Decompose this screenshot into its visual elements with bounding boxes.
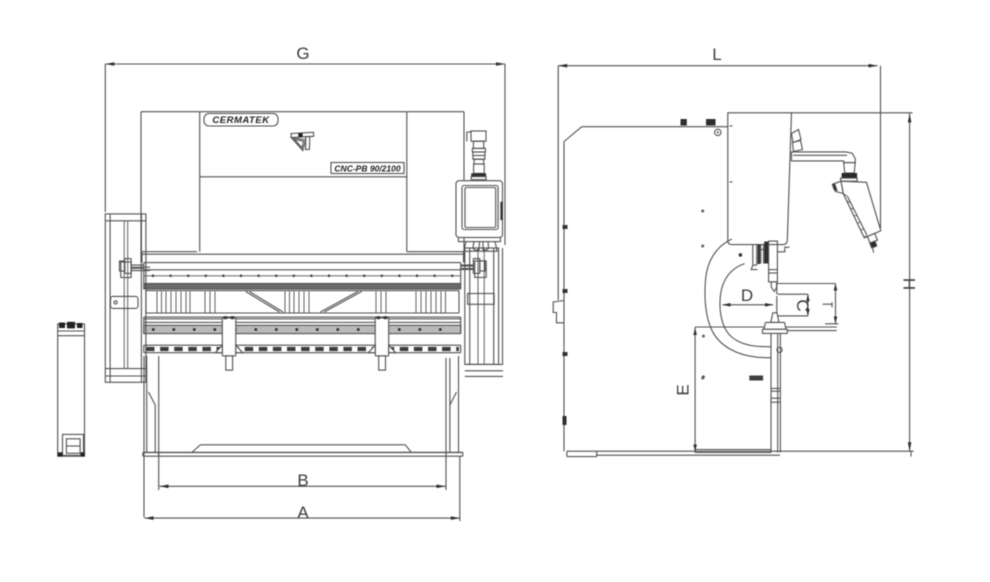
svg-text:C: C (793, 299, 812, 311)
svg-text:L: L (712, 45, 721, 64)
svg-text:B: B (297, 471, 308, 490)
svg-text:D: D (741, 286, 753, 305)
svg-text:CNC-PB 90/2100: CNC-PB 90/2100 (334, 164, 400, 174)
svg-text:CERMATEK: CERMATEK (212, 115, 270, 126)
svg-text:E: E (674, 384, 693, 395)
svg-text:A: A (297, 503, 309, 522)
svg-text:H: H (900, 278, 919, 290)
svg-text:G: G (296, 44, 309, 63)
